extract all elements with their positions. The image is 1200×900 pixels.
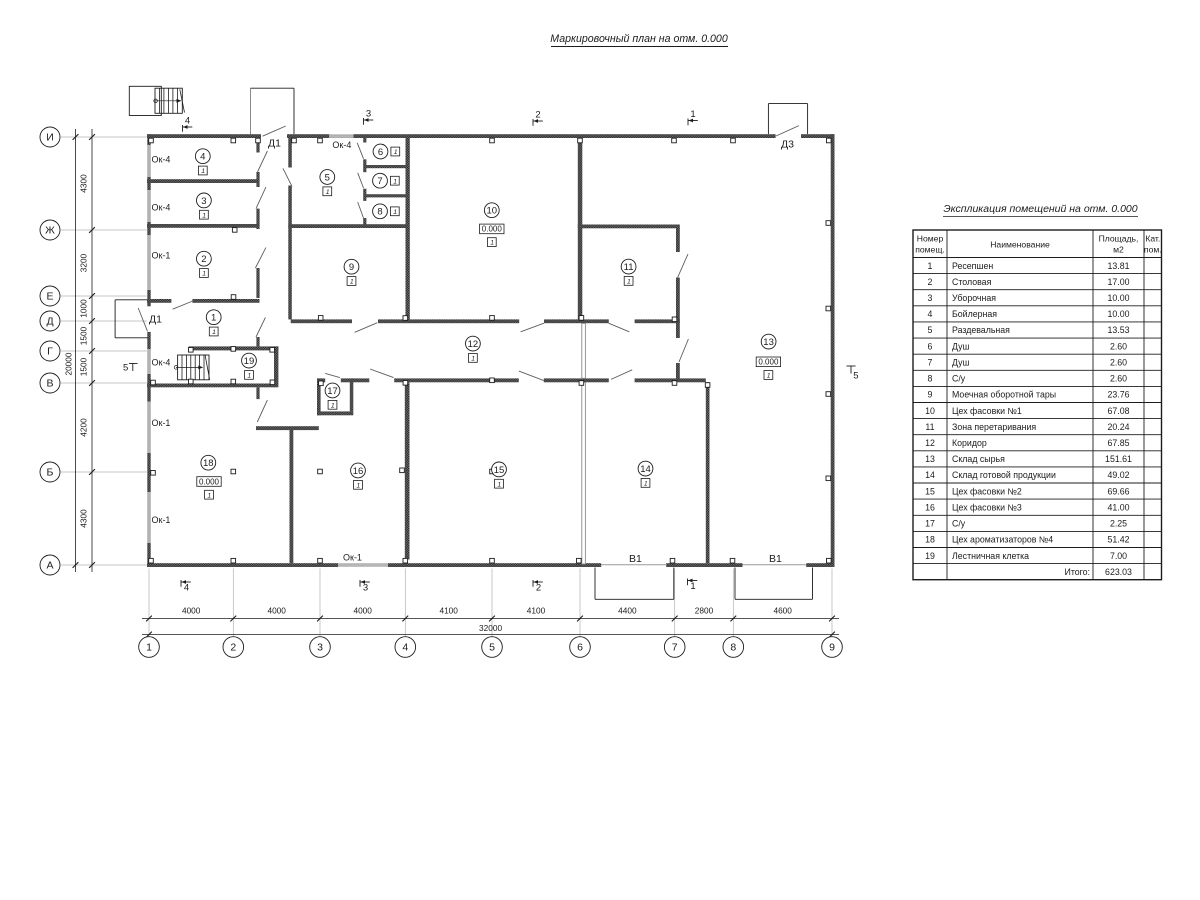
svg-text:3: 3: [363, 583, 368, 594]
svg-text:4000: 4000: [353, 606, 372, 616]
svg-text:Д: Д: [46, 316, 53, 328]
svg-text:15: 15: [494, 465, 505, 476]
svg-text:8: 8: [928, 374, 933, 384]
svg-text:1: 1: [393, 178, 397, 185]
svg-text:23.76: 23.76: [1107, 390, 1129, 400]
svg-text:Душ: Душ: [952, 341, 970, 351]
svg-text:Е: Е: [46, 291, 53, 303]
svg-text:5: 5: [928, 325, 933, 335]
svg-text:Бойлерная: Бойлерная: [952, 309, 997, 319]
svg-text:10: 10: [925, 406, 935, 416]
svg-text:5: 5: [123, 363, 128, 374]
svg-text:151.61: 151.61: [1105, 454, 1132, 464]
svg-text:1: 1: [212, 329, 216, 336]
svg-text:1: 1: [393, 209, 397, 216]
svg-text:Кат.: Кат.: [1145, 234, 1160, 244]
svg-text:1500: 1500: [79, 326, 89, 345]
svg-text:помещ.: помещ.: [915, 244, 945, 254]
svg-text:41.00: 41.00: [1107, 502, 1129, 512]
svg-text:1: 1: [247, 373, 251, 380]
svg-text:13: 13: [925, 454, 935, 464]
svg-text:1: 1: [471, 356, 475, 363]
svg-text:Ок-4: Ок-4: [152, 358, 171, 368]
svg-text:1: 1: [202, 212, 206, 219]
svg-text:2.60: 2.60: [1110, 374, 1127, 384]
svg-text:6: 6: [577, 642, 583, 654]
svg-text:14: 14: [640, 464, 651, 475]
svg-text:Раздевальная: Раздевальная: [952, 325, 1010, 335]
svg-text:1: 1: [644, 481, 648, 488]
svg-text:67.85: 67.85: [1107, 438, 1129, 448]
svg-text:4600: 4600: [773, 606, 792, 616]
svg-text:Лестничная клетка: Лестничная клетка: [952, 551, 1029, 561]
svg-text:9: 9: [349, 262, 354, 273]
svg-text:1000: 1000: [79, 299, 89, 318]
svg-text:1: 1: [767, 373, 771, 380]
svg-text:1: 1: [331, 402, 335, 409]
svg-text:Д3: Д3: [781, 139, 794, 151]
svg-text:3: 3: [366, 109, 371, 120]
svg-text:5: 5: [489, 642, 495, 654]
svg-text:18: 18: [925, 535, 935, 545]
svg-text:17.00: 17.00: [1107, 277, 1129, 287]
svg-text:623.03: 623.03: [1105, 567, 1132, 577]
svg-text:4000: 4000: [267, 606, 286, 616]
svg-text:2.25: 2.25: [1110, 519, 1127, 529]
svg-text:4: 4: [928, 309, 933, 319]
svg-text:1: 1: [201, 168, 205, 175]
svg-text:Ок-1: Ок-1: [343, 553, 362, 563]
svg-text:1: 1: [490, 240, 494, 247]
svg-text:3200: 3200: [79, 253, 89, 272]
svg-text:4300: 4300: [79, 174, 89, 193]
svg-text:2: 2: [201, 254, 206, 265]
svg-text:Ресепшен: Ресепшен: [952, 261, 993, 271]
svg-text:4100: 4100: [439, 606, 458, 616]
svg-text:Моечная оборотной тары: Моечная оборотной тары: [952, 390, 1056, 400]
svg-text:49.02: 49.02: [1107, 470, 1129, 480]
svg-text:И: И: [46, 132, 54, 144]
svg-text:19: 19: [925, 551, 935, 561]
svg-text:2: 2: [928, 277, 933, 287]
svg-text:2: 2: [230, 642, 236, 654]
svg-text:6: 6: [378, 147, 383, 158]
svg-text:Цех фасовки №3: Цех фасовки №3: [952, 502, 1022, 512]
svg-text:1: 1: [928, 261, 933, 271]
svg-text:0.000: 0.000: [758, 358, 779, 367]
svg-text:4: 4: [402, 642, 408, 654]
svg-text:9: 9: [928, 390, 933, 400]
svg-text:4100: 4100: [527, 606, 546, 616]
svg-text:7: 7: [672, 642, 678, 654]
svg-text:11: 11: [925, 422, 934, 432]
svg-text:13.81: 13.81: [1107, 261, 1129, 271]
svg-text:16: 16: [925, 502, 935, 512]
svg-text:16: 16: [353, 466, 364, 477]
svg-text:6: 6: [928, 341, 933, 351]
svg-text:Ок-1: Ок-1: [152, 418, 171, 428]
svg-text:1: 1: [326, 189, 330, 196]
svg-text:Цех фасовки №2: Цех фасовки №2: [952, 486, 1022, 496]
svg-text:Б: Б: [47, 467, 54, 479]
svg-text:Ок-4: Ок-4: [152, 203, 171, 213]
svg-text:м2: м2: [1113, 244, 1124, 254]
svg-text:4: 4: [185, 116, 190, 127]
svg-text:Наименование: Наименование: [990, 240, 1050, 250]
svg-text:51.42: 51.42: [1107, 535, 1129, 545]
svg-text:Номер: Номер: [917, 234, 944, 244]
svg-text:В1: В1: [629, 553, 642, 565]
svg-text:3: 3: [317, 642, 323, 654]
svg-text:2800: 2800: [695, 606, 714, 616]
svg-text:7: 7: [928, 358, 933, 368]
svg-text:13.53: 13.53: [1107, 325, 1129, 335]
svg-text:С/у: С/у: [952, 374, 966, 384]
svg-text:3: 3: [928, 293, 933, 303]
svg-text:69.66: 69.66: [1107, 486, 1129, 496]
svg-text:Маркировочный план на отм. 0.0: Маркировочный план на отм. 0.000: [550, 33, 728, 45]
svg-text:1: 1: [394, 149, 398, 156]
svg-text:4: 4: [184, 583, 189, 594]
svg-text:2.60: 2.60: [1110, 341, 1127, 351]
svg-text:Цех фасовки №1: Цех фасовки №1: [952, 406, 1022, 416]
svg-text:Цех ароматизаторов №4: Цех ароматизаторов №4: [952, 535, 1053, 545]
svg-text:Д1: Д1: [149, 314, 162, 326]
svg-text:20000: 20000: [64, 352, 74, 375]
svg-text:0.000: 0.000: [199, 477, 220, 486]
svg-text:Коридор: Коридор: [952, 438, 987, 448]
svg-text:Д1: Д1: [268, 138, 281, 150]
svg-text:1: 1: [627, 279, 631, 286]
svg-text:Столовая: Столовая: [952, 277, 992, 287]
svg-text:0.000: 0.000: [482, 225, 503, 234]
svg-text:В: В: [46, 378, 53, 390]
svg-text:10.00: 10.00: [1107, 293, 1129, 303]
svg-text:4000: 4000: [182, 606, 201, 616]
svg-text:Ок-1: Ок-1: [152, 515, 171, 525]
svg-text:8: 8: [377, 207, 382, 218]
svg-text:Экспликация помещений на отм.: Экспликация помещений на отм. 0.000: [943, 203, 1137, 215]
svg-text:1: 1: [690, 109, 695, 120]
svg-text:9: 9: [829, 642, 835, 654]
svg-text:Зона перетаривания: Зона перетаривания: [952, 422, 1036, 432]
svg-text:Ок-4: Ок-4: [152, 155, 171, 165]
svg-text:10.00: 10.00: [1107, 309, 1129, 319]
svg-text:4200: 4200: [79, 418, 89, 437]
svg-text:18: 18: [203, 458, 214, 469]
svg-text:7.00: 7.00: [1110, 551, 1127, 561]
svg-text:Г: Г: [47, 346, 53, 358]
svg-text:20.24: 20.24: [1107, 422, 1129, 432]
svg-text:1: 1: [211, 313, 216, 324]
svg-text:1500: 1500: [79, 357, 89, 376]
svg-text:А: А: [46, 560, 53, 572]
svg-text:8: 8: [730, 642, 736, 654]
svg-text:15: 15: [925, 486, 935, 496]
svg-text:Ок-4: Ок-4: [332, 140, 351, 150]
svg-text:Уборочная: Уборочная: [952, 293, 996, 303]
svg-text:4300: 4300: [79, 509, 89, 528]
svg-text:32000: 32000: [479, 623, 502, 633]
svg-text:1: 1: [356, 482, 360, 489]
svg-text:1: 1: [350, 279, 354, 286]
svg-text:В1: В1: [769, 553, 782, 565]
svg-text:12: 12: [925, 438, 935, 448]
svg-text:2: 2: [536, 583, 541, 594]
svg-text:Склад готовой продукции: Склад готовой продукции: [952, 470, 1056, 480]
svg-text:пом.: пом.: [1144, 244, 1162, 254]
svg-text:1: 1: [497, 481, 501, 488]
svg-text:Ж: Ж: [45, 225, 55, 237]
svg-text:2.60: 2.60: [1110, 358, 1127, 368]
svg-text:Душ: Душ: [952, 358, 970, 368]
svg-text:4400: 4400: [618, 606, 637, 616]
svg-text:11: 11: [624, 262, 634, 273]
svg-text:14: 14: [925, 470, 935, 480]
svg-text:С/у: С/у: [952, 519, 966, 529]
svg-text:Склад сырья: Склад сырья: [952, 454, 1005, 464]
svg-text:13: 13: [763, 337, 774, 348]
svg-text:Итого:: Итого:: [1065, 567, 1091, 577]
svg-text:5: 5: [853, 371, 858, 382]
svg-text:19: 19: [244, 356, 255, 367]
svg-text:1: 1: [690, 581, 695, 592]
svg-text:1: 1: [202, 271, 206, 278]
svg-text:1: 1: [207, 492, 211, 499]
svg-text:17: 17: [327, 386, 338, 397]
svg-text:10: 10: [487, 206, 498, 217]
svg-text:12: 12: [468, 339, 479, 350]
svg-text:5: 5: [325, 172, 330, 183]
svg-text:Площадь,: Площадь,: [1099, 234, 1139, 244]
svg-text:3: 3: [201, 196, 206, 207]
svg-text:67.08: 67.08: [1107, 406, 1129, 416]
svg-text:17: 17: [925, 519, 935, 529]
svg-text:4: 4: [200, 152, 205, 163]
svg-text:1: 1: [146, 642, 152, 654]
svg-text:2: 2: [535, 110, 540, 121]
svg-text:7: 7: [377, 176, 382, 187]
svg-text:Ок-1: Ок-1: [152, 251, 171, 261]
